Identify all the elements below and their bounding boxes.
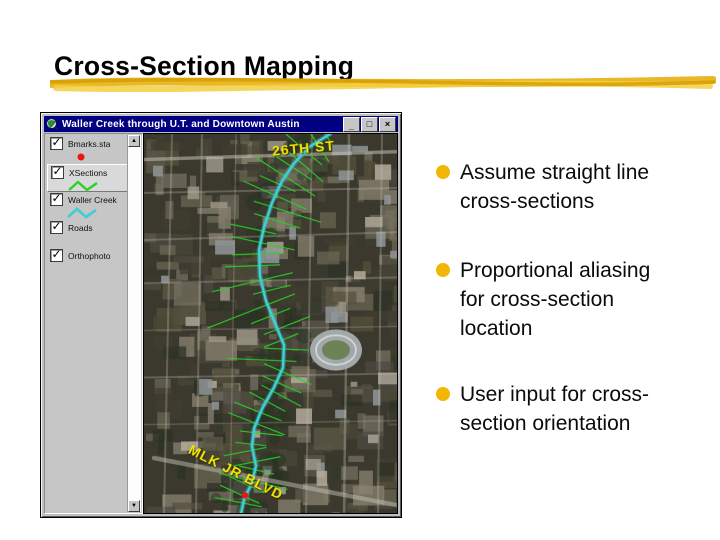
bullet-text: Proportional aliasing for cross-section … xyxy=(460,256,650,343)
bullet-item: Assume straight line cross-sections xyxy=(436,158,720,216)
layer-checkbox[interactable]: ✓ xyxy=(50,221,63,234)
window-titlebar[interactable]: Waller Creek through U.T. and Downtown A… xyxy=(44,116,398,132)
bullet-text: Assume straight line cross-sections xyxy=(460,158,649,216)
legend-item-roads[interactable]: ✓Roads xyxy=(47,220,128,248)
arrow-up-icon: ▲ xyxy=(131,138,137,144)
bullet-dot-icon xyxy=(436,165,450,179)
bullet-item: Proportional aliasing for cross-section … xyxy=(436,256,720,343)
window-title: Waller Creek through U.T. and Downtown A… xyxy=(62,119,342,130)
maximize-icon: □ xyxy=(367,120,372,129)
close-button[interactable]: × xyxy=(379,117,396,132)
bullet-dot-icon xyxy=(436,263,450,277)
layer-checkbox[interactable]: ✓ xyxy=(51,166,64,179)
legend-item-list: ✓Bmarks.sta✓XSections✓Waller Creek✓Roads… xyxy=(47,136,128,511)
layer-label: Orthophoto xyxy=(68,251,111,261)
legend-item-waller-creek[interactable]: ✓Waller Creek xyxy=(47,192,128,220)
layer-checkbox[interactable]: ✓ xyxy=(50,249,63,262)
bullet-text: User input for cross- section orientatio… xyxy=(460,380,649,438)
none-symbol xyxy=(50,262,128,275)
maximize-button[interactable]: □ xyxy=(361,117,378,132)
bullet-item: User input for cross- section orientatio… xyxy=(436,380,720,438)
none-symbol xyxy=(50,234,128,247)
legend-scrollbar[interactable]: ▲ ▼ xyxy=(127,135,141,512)
scroll-up-button[interactable]: ▲ xyxy=(128,135,140,147)
marker-underline xyxy=(50,71,716,97)
layer-legend: ✓Bmarks.sta✓XSections✓Waller Creek✓Roads… xyxy=(44,133,143,514)
scroll-down-button[interactable]: ▼ xyxy=(128,500,140,512)
layer-label: Waller Creek xyxy=(68,195,117,205)
legend-item-xsections[interactable]: ✓XSections xyxy=(47,164,128,192)
bullet-dot-icon xyxy=(436,387,450,401)
aerial-map-canvas xyxy=(144,134,397,513)
layer-label: XSections xyxy=(69,168,107,178)
minimize-button[interactable]: _ xyxy=(343,117,360,132)
layer-checkbox[interactable]: ✓ xyxy=(50,137,63,150)
map-viewport[interactable]: 26TH ST MLK JR BLVD xyxy=(143,133,398,514)
cyan-zigzag-symbol xyxy=(50,206,128,219)
red-dot-symbol xyxy=(50,150,128,163)
legend-item-bmarks-sta[interactable]: ✓Bmarks.sta xyxy=(47,136,128,164)
layer-label: Roads xyxy=(68,223,93,233)
legend-item-orthophoto[interactable]: ✓Orthophoto xyxy=(47,248,128,276)
gis-window: Waller Creek through U.T. and Downtown A… xyxy=(40,112,402,518)
arcview-globe-icon xyxy=(46,118,58,130)
green-zigzag-symbol xyxy=(51,179,127,192)
close-icon: × xyxy=(385,120,390,129)
layer-label: Bmarks.sta xyxy=(68,139,111,149)
minimize-icon: _ xyxy=(349,122,354,131)
arrow-down-icon: ▼ xyxy=(131,503,137,509)
layer-checkbox[interactable]: ✓ xyxy=(50,193,63,206)
